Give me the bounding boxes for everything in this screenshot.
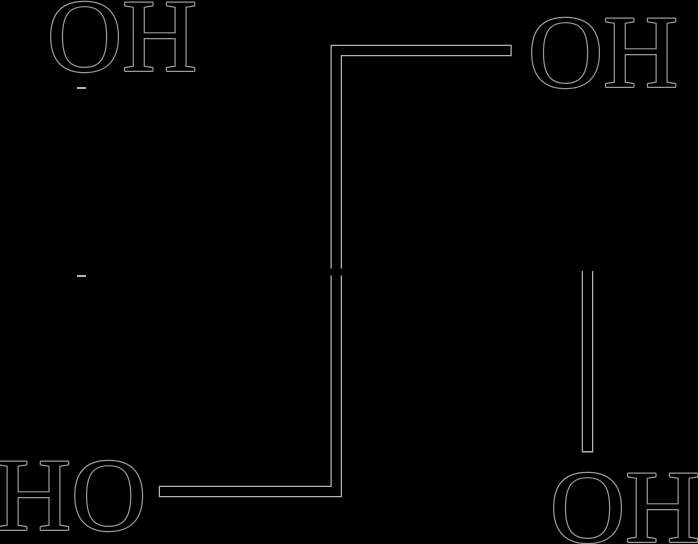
bond-upper-halo [336, 51, 512, 273]
hydroxyl-label-top-right: OH [528, 0, 678, 110]
hydroxyl-label-top-left: OH [47, 0, 197, 94]
bond-lower [160, 272, 336, 492]
bond-lower-halo [159, 272, 337, 492]
diagram-canvas: OH OH HO OH [0, 0, 698, 544]
bond-junction-notch [329, 269, 345, 276]
hydroxyl-label-bottom-left: HO [0, 438, 146, 544]
bond-upper [336, 51, 510, 273]
hydroxyl-label-bottom-right: OH [550, 450, 698, 544]
molecule-structure: OH OH HO OH [0, 0, 698, 544]
